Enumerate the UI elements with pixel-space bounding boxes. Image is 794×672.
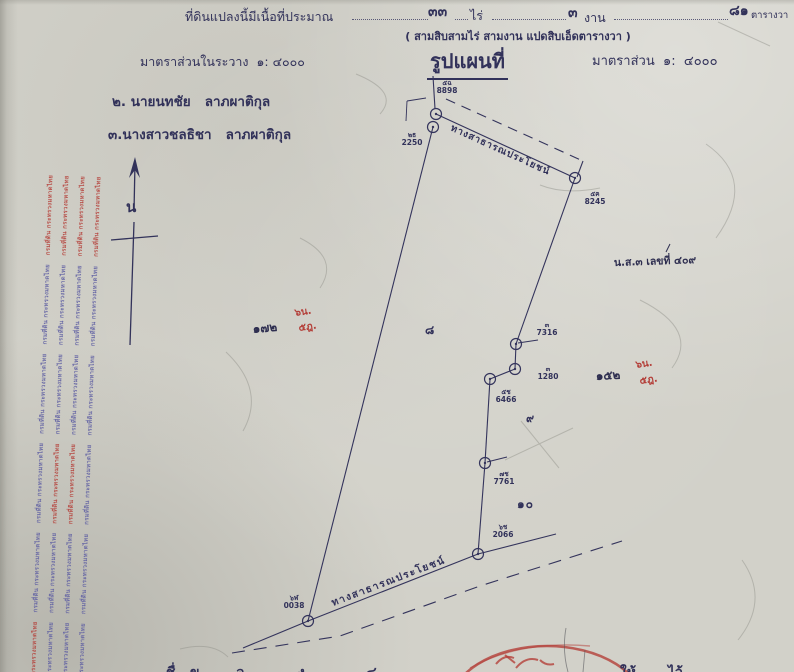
- road-bottom-label: ทางสาธารณประโยชน์: [329, 553, 447, 609]
- neighbor-red-text: ๕ฎ.: [639, 374, 658, 387]
- north-label: น: [126, 198, 137, 216]
- plot-number-8: ๘: [425, 323, 434, 337]
- neighbor-red-text: ๖น.: [293, 306, 312, 319]
- cutoff-text-fragment: ข: [190, 662, 200, 672]
- marker-number: 1280: [538, 372, 559, 381]
- cutoff-text-fragment: ง: [298, 662, 305, 672]
- boundary-marker-labels: ๕ฉ 8898 ๒ธ 2250 ๕ฅ 8245 ๓ 7316 ๓ 1280 ๕ช…: [284, 79, 606, 610]
- marker-number: 8898: [437, 86, 458, 95]
- boundary-marker-circles: [303, 109, 581, 627]
- plot-number-9: ๙: [526, 412, 534, 425]
- cutoff-text-fragment: ไว้: [668, 662, 683, 672]
- cutoff-text-fragment: ชื่: [166, 662, 176, 672]
- neighbor-red-text: ๖น.: [634, 358, 653, 371]
- red-stamp: [449, 645, 645, 672]
- marker-number: 2250: [402, 138, 423, 147]
- cutoff-text-fragment: ให้: [620, 662, 636, 672]
- marker-number: 7761: [494, 477, 515, 486]
- neighbor-note-left: ๑๗๒ ๖น. ๕ฎ.: [252, 306, 317, 336]
- pencil-marks: [180, 22, 770, 657]
- neighbor-black-text: ๑๕๒: [595, 368, 620, 383]
- plot-number-10: ๑๐: [517, 497, 534, 511]
- north-arrow: [111, 157, 158, 345]
- marker-number: 8245: [585, 197, 606, 206]
- marker-number: 0038: [284, 601, 305, 610]
- survey-plan-drawing: น: [0, 0, 794, 672]
- marker-number: 2066: [493, 530, 514, 539]
- cutoff-text-fragment: ล: [236, 662, 245, 672]
- marker-number: 6466: [496, 395, 517, 404]
- cutoff-text-fragment: ๘: [366, 662, 377, 672]
- deed-reference: น.ส.๓ เลขที่ ๔๐๙: [614, 251, 697, 269]
- deed-reference-tick: [666, 244, 670, 252]
- road-top-label: ทางสาธารณประโยชน์: [449, 122, 552, 178]
- scanned-land-deed-page: กรมที่ดิน กระทรวงมหาดไทยกรมที่ดิน กระทรว…: [0, 0, 794, 672]
- neighbor-black-text: ๑๗๒: [252, 320, 278, 336]
- neighbor-note-right: ๑๕๒ ๖น. ๕ฎ.: [595, 358, 658, 387]
- neighbor-red-text: ๕ฎ.: [298, 321, 317, 334]
- marker-number: 7316: [537, 328, 558, 337]
